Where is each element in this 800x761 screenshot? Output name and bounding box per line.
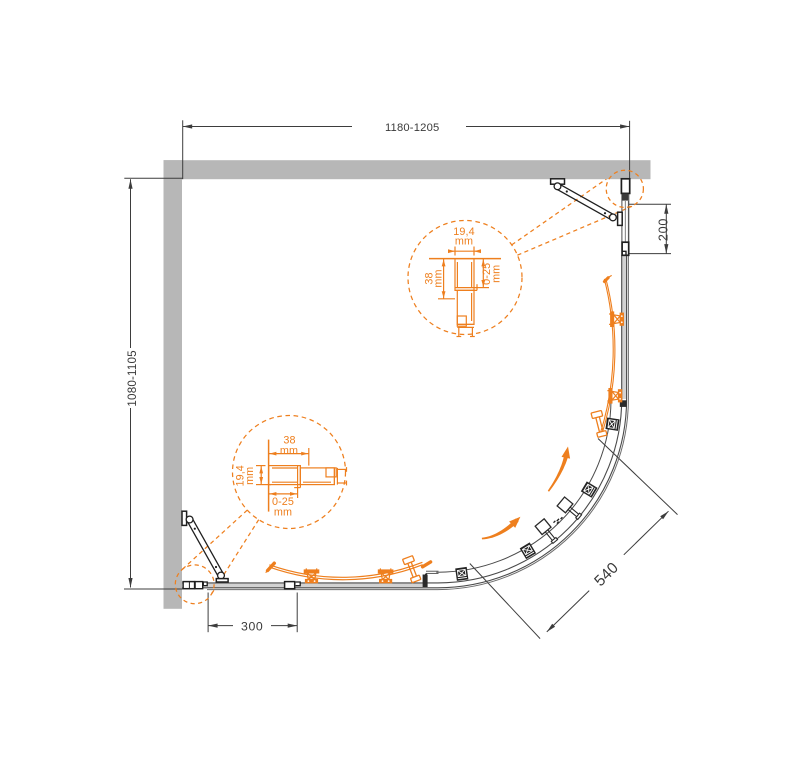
svg-text:300: 300 [241,619,263,633]
svg-text:mm: mm [491,265,503,283]
svg-text:mm: mm [433,269,445,287]
svg-text:1180-1205: 1180-1205 [385,122,439,134]
svg-text:mm: mm [244,467,256,485]
svg-text:mm: mm [280,445,298,457]
svg-text:mm: mm [274,507,292,519]
svg-text:200: 200 [656,218,670,241]
svg-text:1080-1105: 1080-1105 [126,350,139,406]
svg-text:mm: mm [455,236,473,248]
